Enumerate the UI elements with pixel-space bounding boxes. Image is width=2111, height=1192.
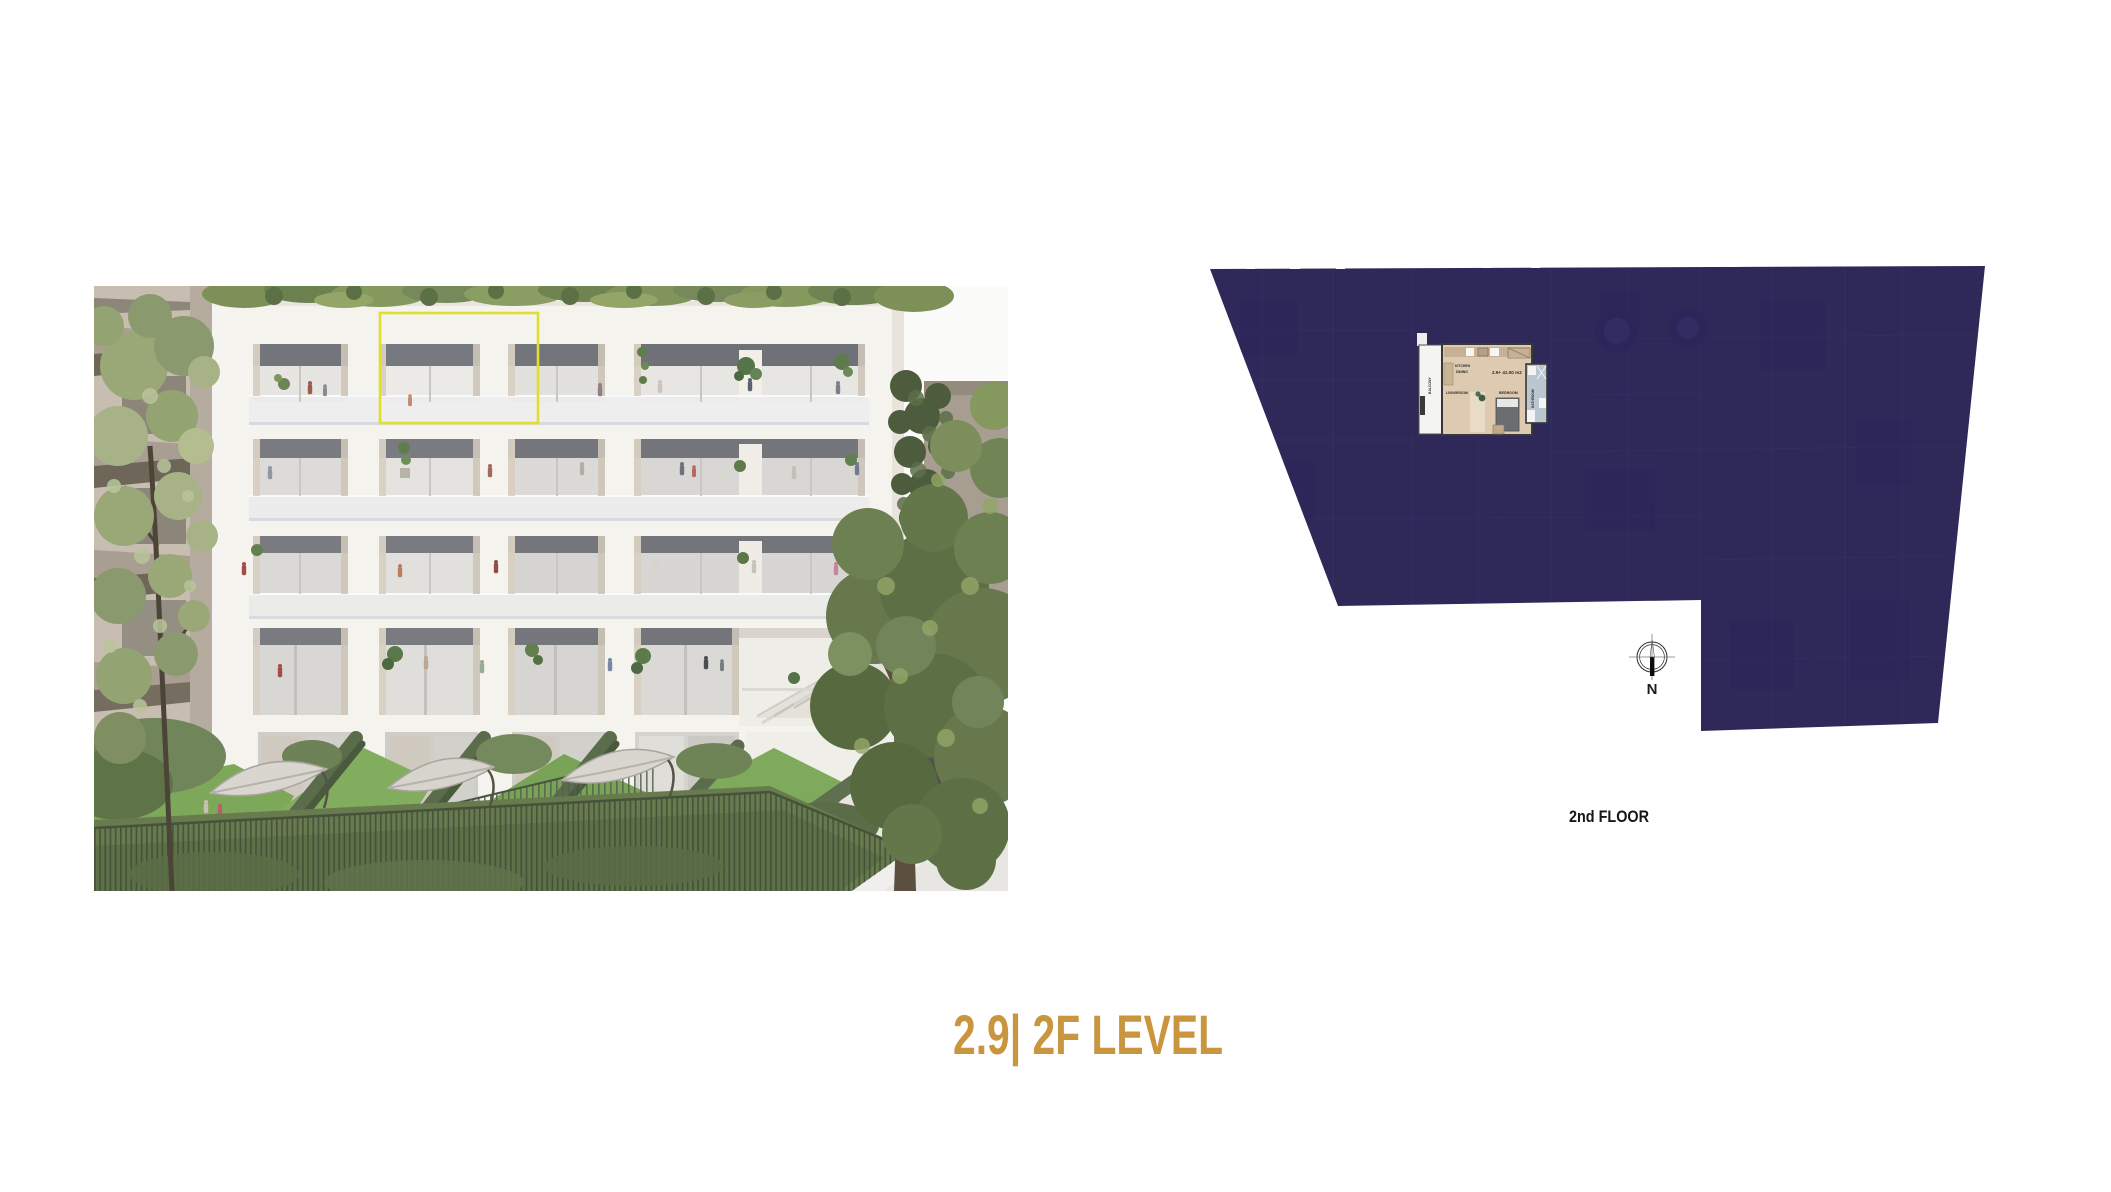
svg-text:BATHROOM: BATHROOM	[1531, 389, 1535, 408]
svg-text:2nd FLOOR: 2nd FLOOR	[1569, 808, 1649, 826]
svg-text:2.9| 2F LEVEL: 2.9| 2F LEVEL	[953, 1003, 1223, 1067]
svg-text:BEDROOM: BEDROOM	[1499, 391, 1518, 395]
svg-text:LIVINGROOM: LIVINGROOM	[1446, 391, 1468, 395]
svg-text:BALCONY: BALCONY	[1428, 376, 1432, 394]
svg-text:2.9+ 41.00 m2: 2.9+ 41.00 m2	[1492, 370, 1522, 375]
svg-text:N: N	[1647, 681, 1658, 698]
svg-text:DINING: DINING	[1456, 370, 1468, 374]
svg-text:KITCHEN: KITCHEN	[1455, 364, 1471, 368]
